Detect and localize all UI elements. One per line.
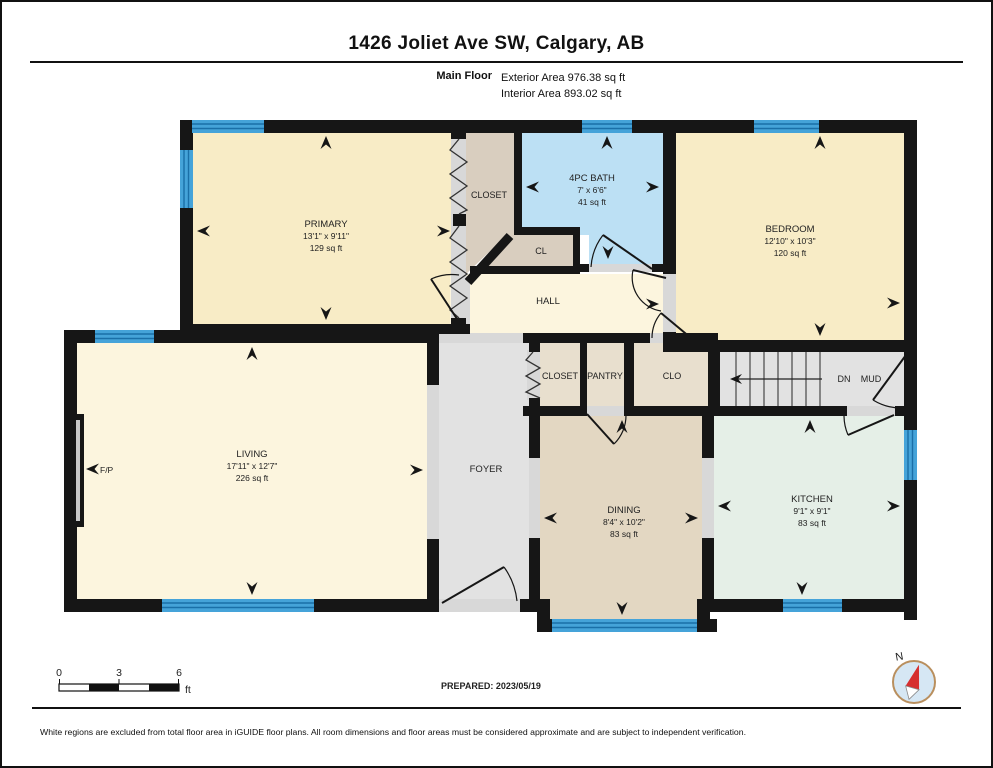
room-label-bath: 4PC BATH (569, 173, 615, 184)
opening-front-door (439, 599, 520, 612)
room-label-primary: PRIMARY (304, 219, 348, 230)
floor-plan-canvas: PRIMARY 13'1" x 9'11" 129 sq ft CLOSET 4… (2, 2, 993, 768)
room-label-hall: HALL (536, 296, 560, 307)
scale-tick-3: 3 (116, 667, 122, 679)
scale-tick-0: 0 (56, 667, 62, 679)
window (162, 599, 314, 612)
fireplace (71, 414, 84, 527)
room-label-bedroom: BEDROOM (765, 224, 814, 235)
room-dims-bedroom: 12'10" x 10'3" (764, 236, 815, 246)
room-area-primary: 129 sq ft (310, 243, 343, 253)
room-label-dn: DN (838, 374, 851, 384)
room-area-kitchen: 83 sq ft (798, 518, 827, 528)
scale-bar: 0 3 6 ft (56, 667, 191, 696)
opening-pantry-door (587, 406, 624, 416)
window (904, 430, 917, 480)
scale-unit: ft (185, 684, 191, 696)
opening-mud-kitchen (847, 406, 895, 416)
room-dims-primary: 13'1" x 9'11" (303, 231, 349, 241)
window (180, 150, 193, 208)
fireplace-label: F/P (100, 465, 114, 475)
opening-foyer-dining (529, 458, 540, 538)
room-area-living: 226 sq ft (236, 473, 269, 483)
footer-divider (32, 707, 961, 709)
room-label-center-closet: CLOSET (542, 371, 579, 381)
room-label-dining: DINING (607, 505, 640, 516)
window (582, 120, 632, 133)
room-label-clo: CLO (663, 371, 682, 381)
disclaimer-text: White regions are excluded from total fl… (40, 727, 971, 737)
floor-plan-page: 1426 Joliet Ave SW, Calgary, AB Main Flo… (0, 0, 993, 768)
room-living-floor (77, 343, 427, 599)
room-label-mud: MUD (861, 374, 882, 384)
compass-icon: N (893, 651, 935, 703)
room-dims-bath: 7' x 6'6" (577, 185, 606, 195)
window (95, 330, 154, 343)
opening-living-foyer (427, 385, 439, 539)
room-label-cl: CL (535, 246, 547, 256)
room-label-pantry: PANTRY (587, 371, 623, 381)
room-area-bedroom: 120 sq ft (774, 248, 807, 258)
opening-hall-foyer (439, 333, 523, 343)
room-area-dining: 83 sq ft (610, 529, 639, 539)
room-fills (77, 133, 904, 619)
compass-north-label: N (894, 651, 904, 664)
room-dims-kitchen: 9'1" x 9'1" (793, 506, 830, 516)
prepared-date: PREPARED: 2023/05/19 (441, 681, 541, 691)
room-dims-living: 17'11" x 12'7" (227, 461, 278, 471)
opening-bath-door (589, 264, 652, 272)
room-label-foyer: FOYER (470, 464, 503, 475)
window (783, 599, 842, 612)
room-label-living: LIVING (236, 449, 267, 460)
room-area-bath: 41 sq ft (578, 197, 607, 207)
window (754, 120, 819, 133)
scale-tick-6: 6 (176, 667, 182, 679)
window (192, 120, 264, 133)
window (552, 619, 697, 632)
room-label-kitchen: KITCHEN (791, 494, 833, 505)
room-dims-dining: 8'4" x 10'2" (603, 517, 645, 527)
opening-dining-kitchen (702, 458, 714, 538)
room-label-primary-closet: CLOSET (471, 190, 508, 200)
